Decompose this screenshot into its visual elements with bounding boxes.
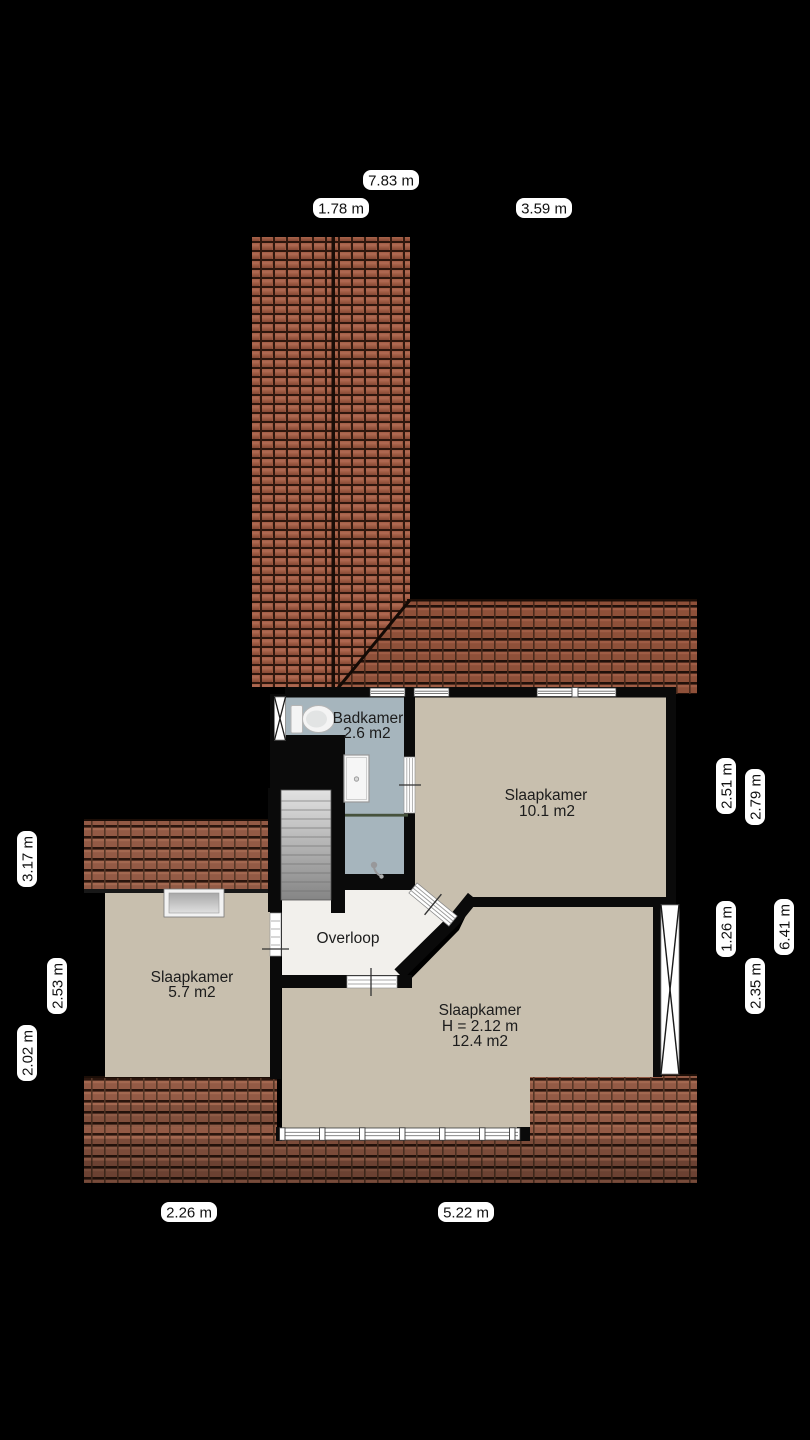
wall-segment: [331, 792, 345, 913]
dim-label: 2.51 m: [716, 758, 736, 814]
svg-text:2.79 m: 2.79 m: [747, 774, 764, 820]
wall-segment: [285, 735, 345, 792]
roof-tiles: [84, 820, 270, 893]
roof-ridge-line: [332, 237, 336, 687]
label-slaapkamer-10-area: 10.1 m2: [519, 803, 575, 820]
dim-label: 2.79 m: [745, 769, 765, 825]
label-slaapkamer-10: Slaapkamer: [505, 787, 588, 804]
dim-label: 2.35 m: [745, 958, 765, 1014]
svg-text:3.17 m: 3.17 m: [19, 836, 36, 882]
label-badkamer-area: 2.6 m2: [343, 725, 390, 742]
roof-shadow: [84, 1139, 697, 1161]
wall-segment: [268, 788, 281, 912]
roof-vertical-strip: [252, 237, 410, 687]
dim-label: 2.53 m: [47, 958, 67, 1014]
svg-text:2.26 m: 2.26 m: [166, 1204, 212, 1221]
dim-label: 3.17 m: [17, 831, 37, 887]
svg-text:2.51 m: 2.51 m: [718, 763, 735, 809]
dim-label: 7.83 m: [363, 170, 419, 190]
label-slaapkamer-5-area: 5.7 m2: [168, 984, 215, 1001]
svg-text:2.53 m: 2.53 m: [49, 963, 66, 1009]
dim-label: 5.22 m: [438, 1202, 494, 1222]
svg-text:1.26 m: 1.26 m: [718, 906, 735, 952]
dim-label: 6.41 m: [774, 899, 794, 955]
dim-label: 2.02 m: [17, 1025, 37, 1081]
label-slaapkamer-12: Slaapkamer: [439, 1002, 522, 1019]
roof-shadow: [84, 1105, 277, 1127]
svg-text:2.02 m: 2.02 m: [19, 1030, 36, 1076]
toilet-icon: [291, 706, 335, 734]
svg-text:7.83 m: 7.83 m: [368, 172, 414, 189]
roof-shadow: [84, 1161, 697, 1183]
shower-screen-line: [345, 814, 408, 817]
svg-text:5.22 m: 5.22 m: [443, 1204, 489, 1221]
window: [537, 688, 616, 698]
wall-segment: [666, 687, 676, 907]
svg-text:6.41 m: 6.41 m: [776, 904, 793, 950]
bottom-window-band: [280, 1128, 521, 1141]
wall-segment: [467, 897, 676, 907]
x-window-left: [275, 697, 286, 740]
roof-tiles: [252, 237, 410, 687]
shower-icon: [344, 755, 369, 802]
floorplan-svg: Badkamer 2.6 m2 Slaapkamer 10.1 m2 Overl…: [0, 0, 810, 1440]
window: [414, 688, 449, 697]
svg-text:3.59 m: 3.59 m: [521, 200, 567, 217]
x-window-right: [661, 905, 679, 1074]
dim-label: 3.59 m: [516, 198, 572, 218]
wall-segment: [285, 687, 676, 698]
floorplan-canvas: Badkamer 2.6 m2 Slaapkamer 10.1 m2 Overl…: [0, 0, 810, 1440]
label-slaapkamer-12-area: 12.4 m2: [452, 1033, 508, 1050]
stairs: [281, 790, 331, 900]
window: [370, 688, 405, 697]
roof-edge: [407, 599, 697, 602]
roof-left-piece: [84, 819, 270, 893]
stairs-body: [281, 790, 331, 900]
wall-segment: [270, 955, 281, 1079]
svg-text:2.35 m: 2.35 m: [747, 963, 764, 1009]
skylight: [164, 889, 224, 917]
dim-label: 1.26 m: [716, 901, 736, 957]
dim-label: 2.26 m: [161, 1202, 217, 1222]
label-overloop: Overloop: [317, 930, 380, 947]
roof-edge: [84, 819, 270, 821]
svg-text:1.78 m: 1.78 m: [318, 200, 364, 217]
wall-segment: [337, 874, 413, 890]
dim-label: 1.78 m: [313, 198, 369, 218]
